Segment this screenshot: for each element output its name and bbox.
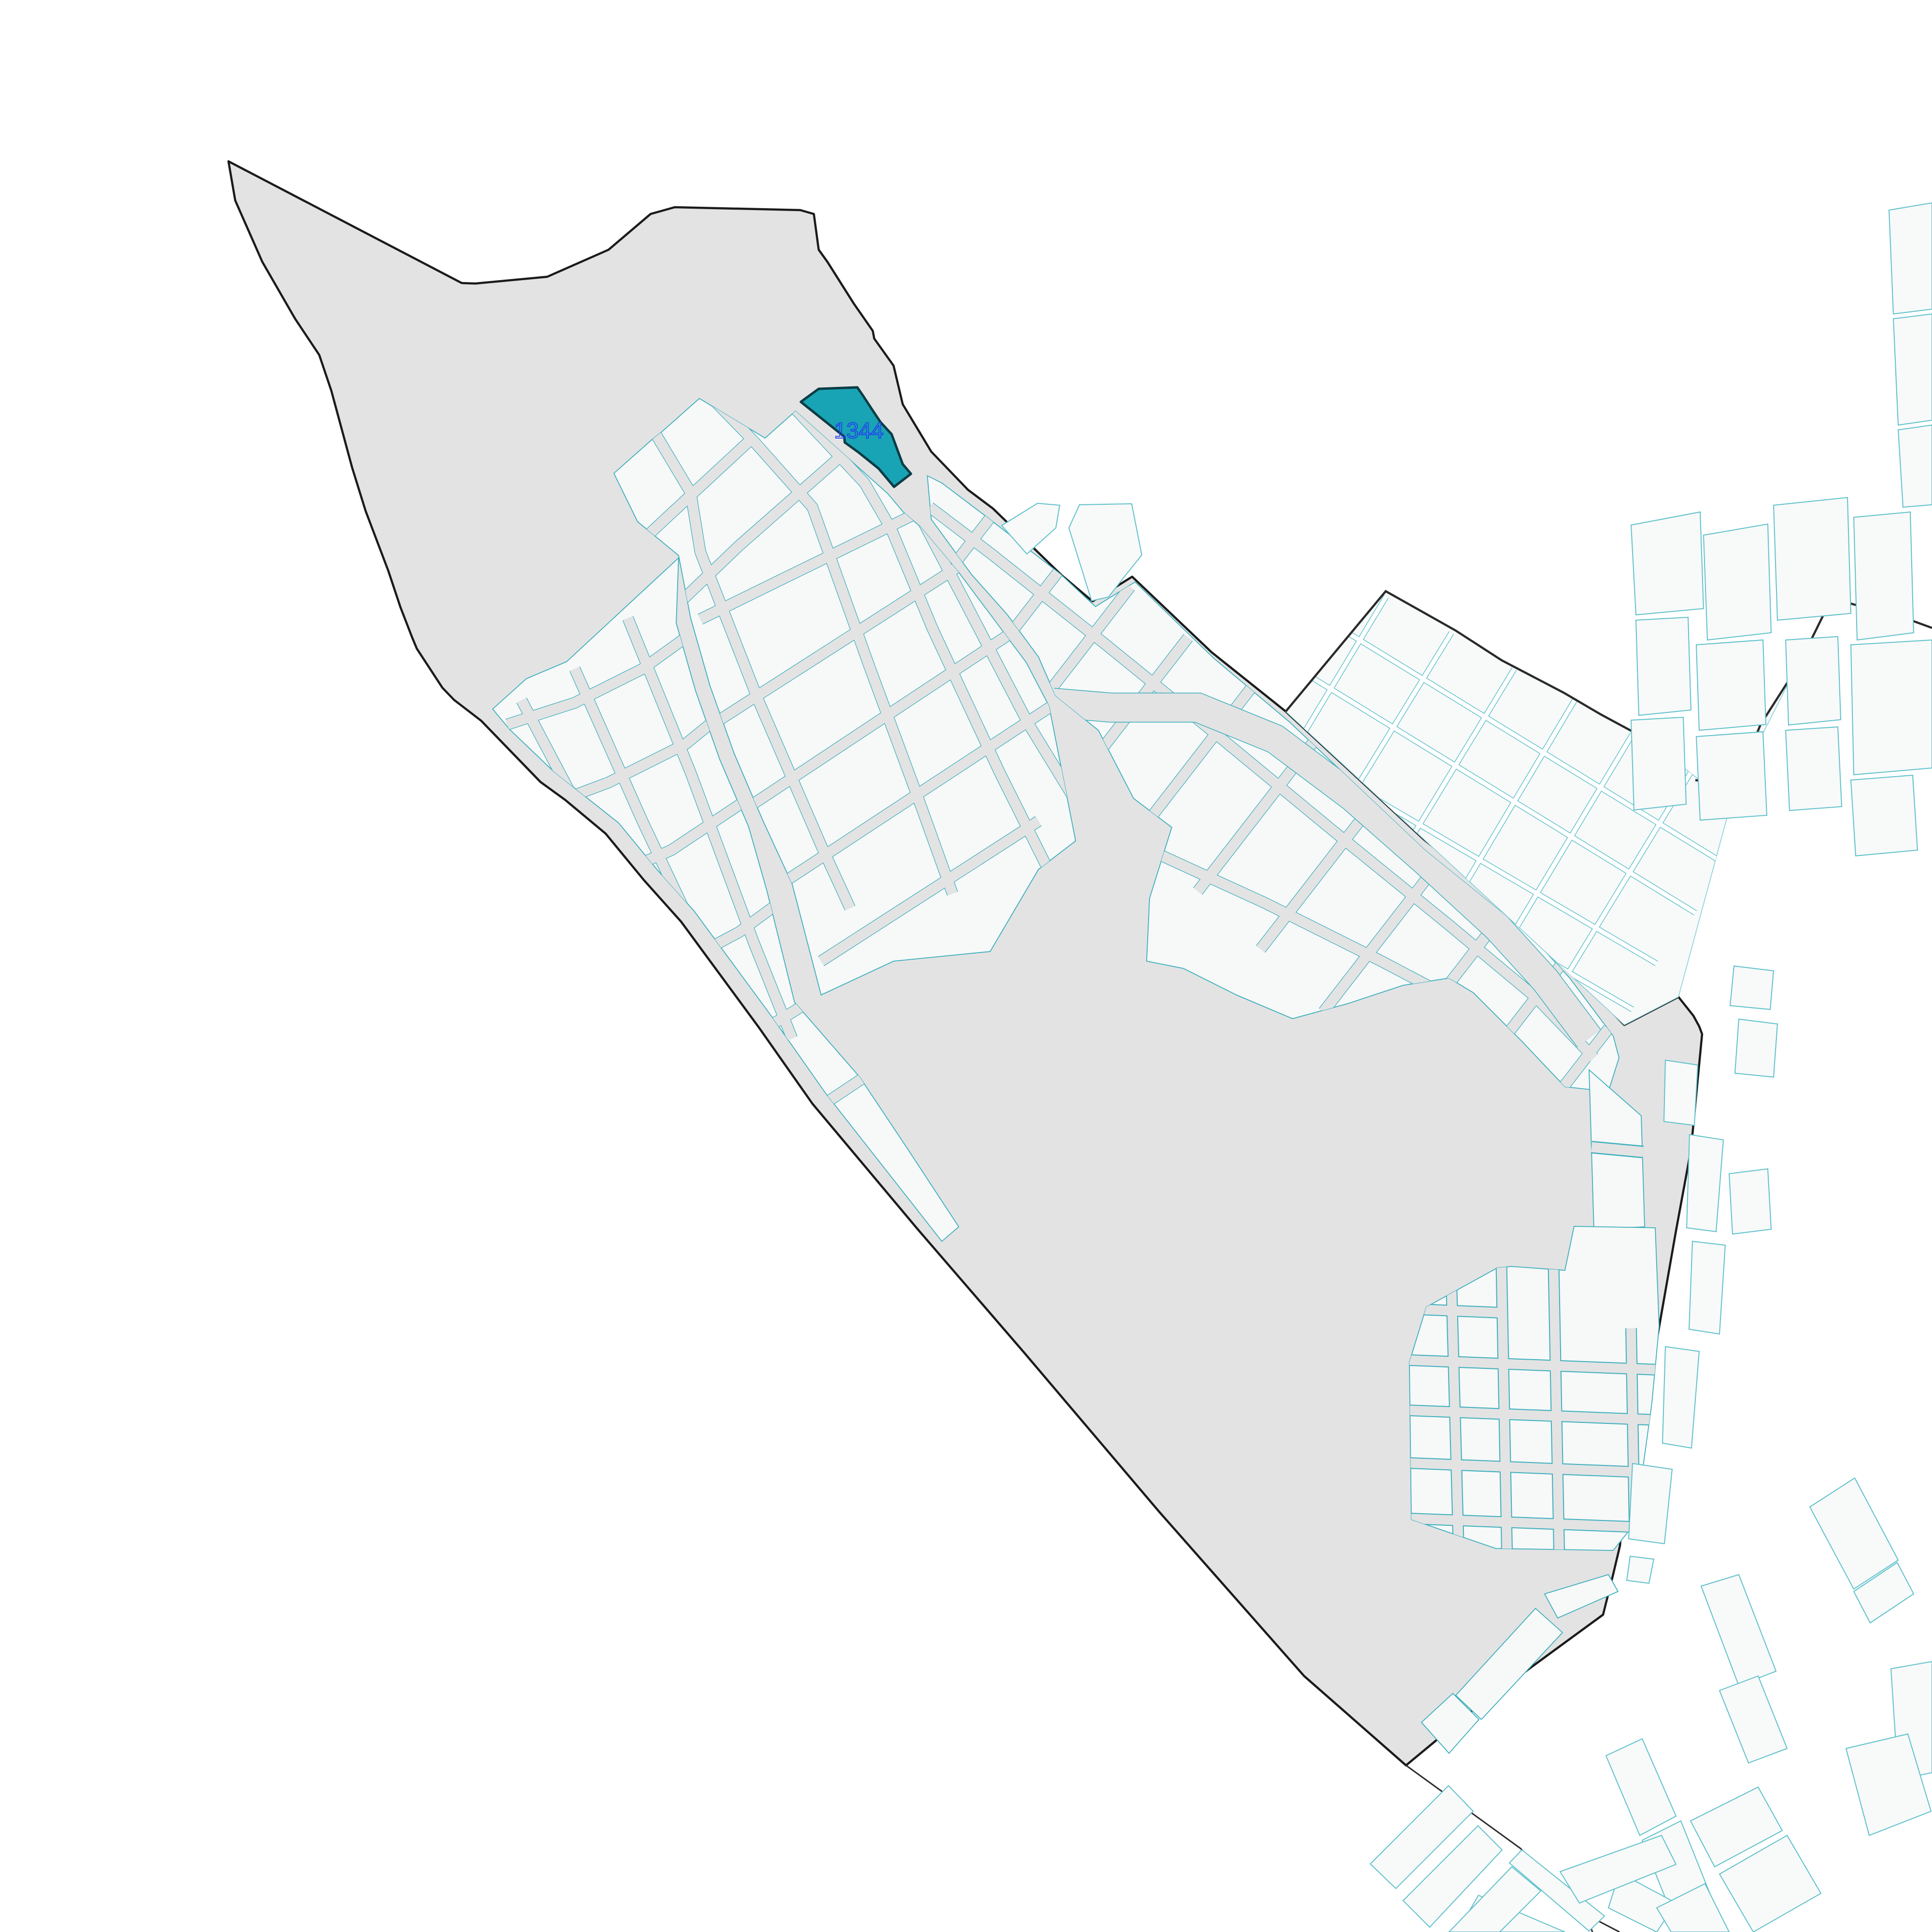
svg-text:1344: 1344 (834, 418, 883, 443)
